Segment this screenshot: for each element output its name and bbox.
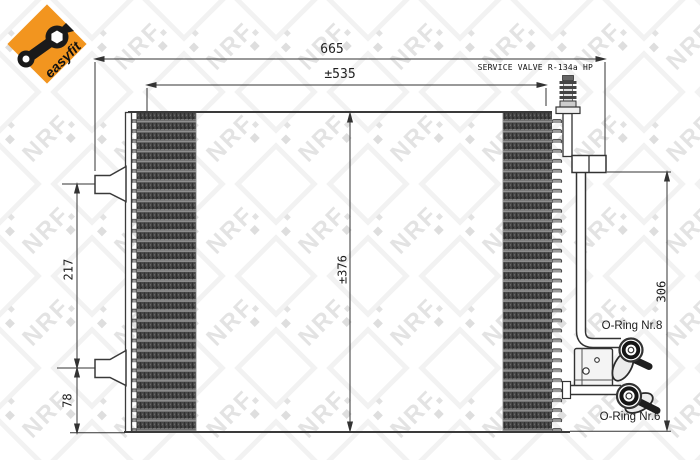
tube-ends-left (132, 113, 137, 432)
oring-port-lower (617, 384, 641, 408)
fin-band-right (503, 113, 552, 432)
oring-port-upper (620, 339, 643, 362)
mounting-bracket (575, 349, 613, 388)
tube-ends-right (552, 113, 563, 432)
oring-lower-label: O-Ring Nr.6 (580, 411, 680, 424)
dim-core-height: ±376 (336, 235, 349, 305)
service-valve-label: SERVICE VALVE R-134a HP (453, 64, 593, 73)
pipe-flange (563, 382, 571, 399)
dim-right-span: 306 (655, 257, 668, 327)
condenser-drawing-canvas: NRF (0, 0, 700, 460)
oring-upper-label: O-Ring Nr.8 (582, 320, 682, 333)
dim-core-width: ±535 (315, 68, 365, 82)
dim-left-lower: 78 (61, 366, 74, 436)
dim-left-upper: 217 (62, 235, 75, 305)
dim-total-width: 665 (312, 43, 352, 57)
valve-flange (556, 107, 580, 114)
fin-band-left (137, 113, 197, 432)
